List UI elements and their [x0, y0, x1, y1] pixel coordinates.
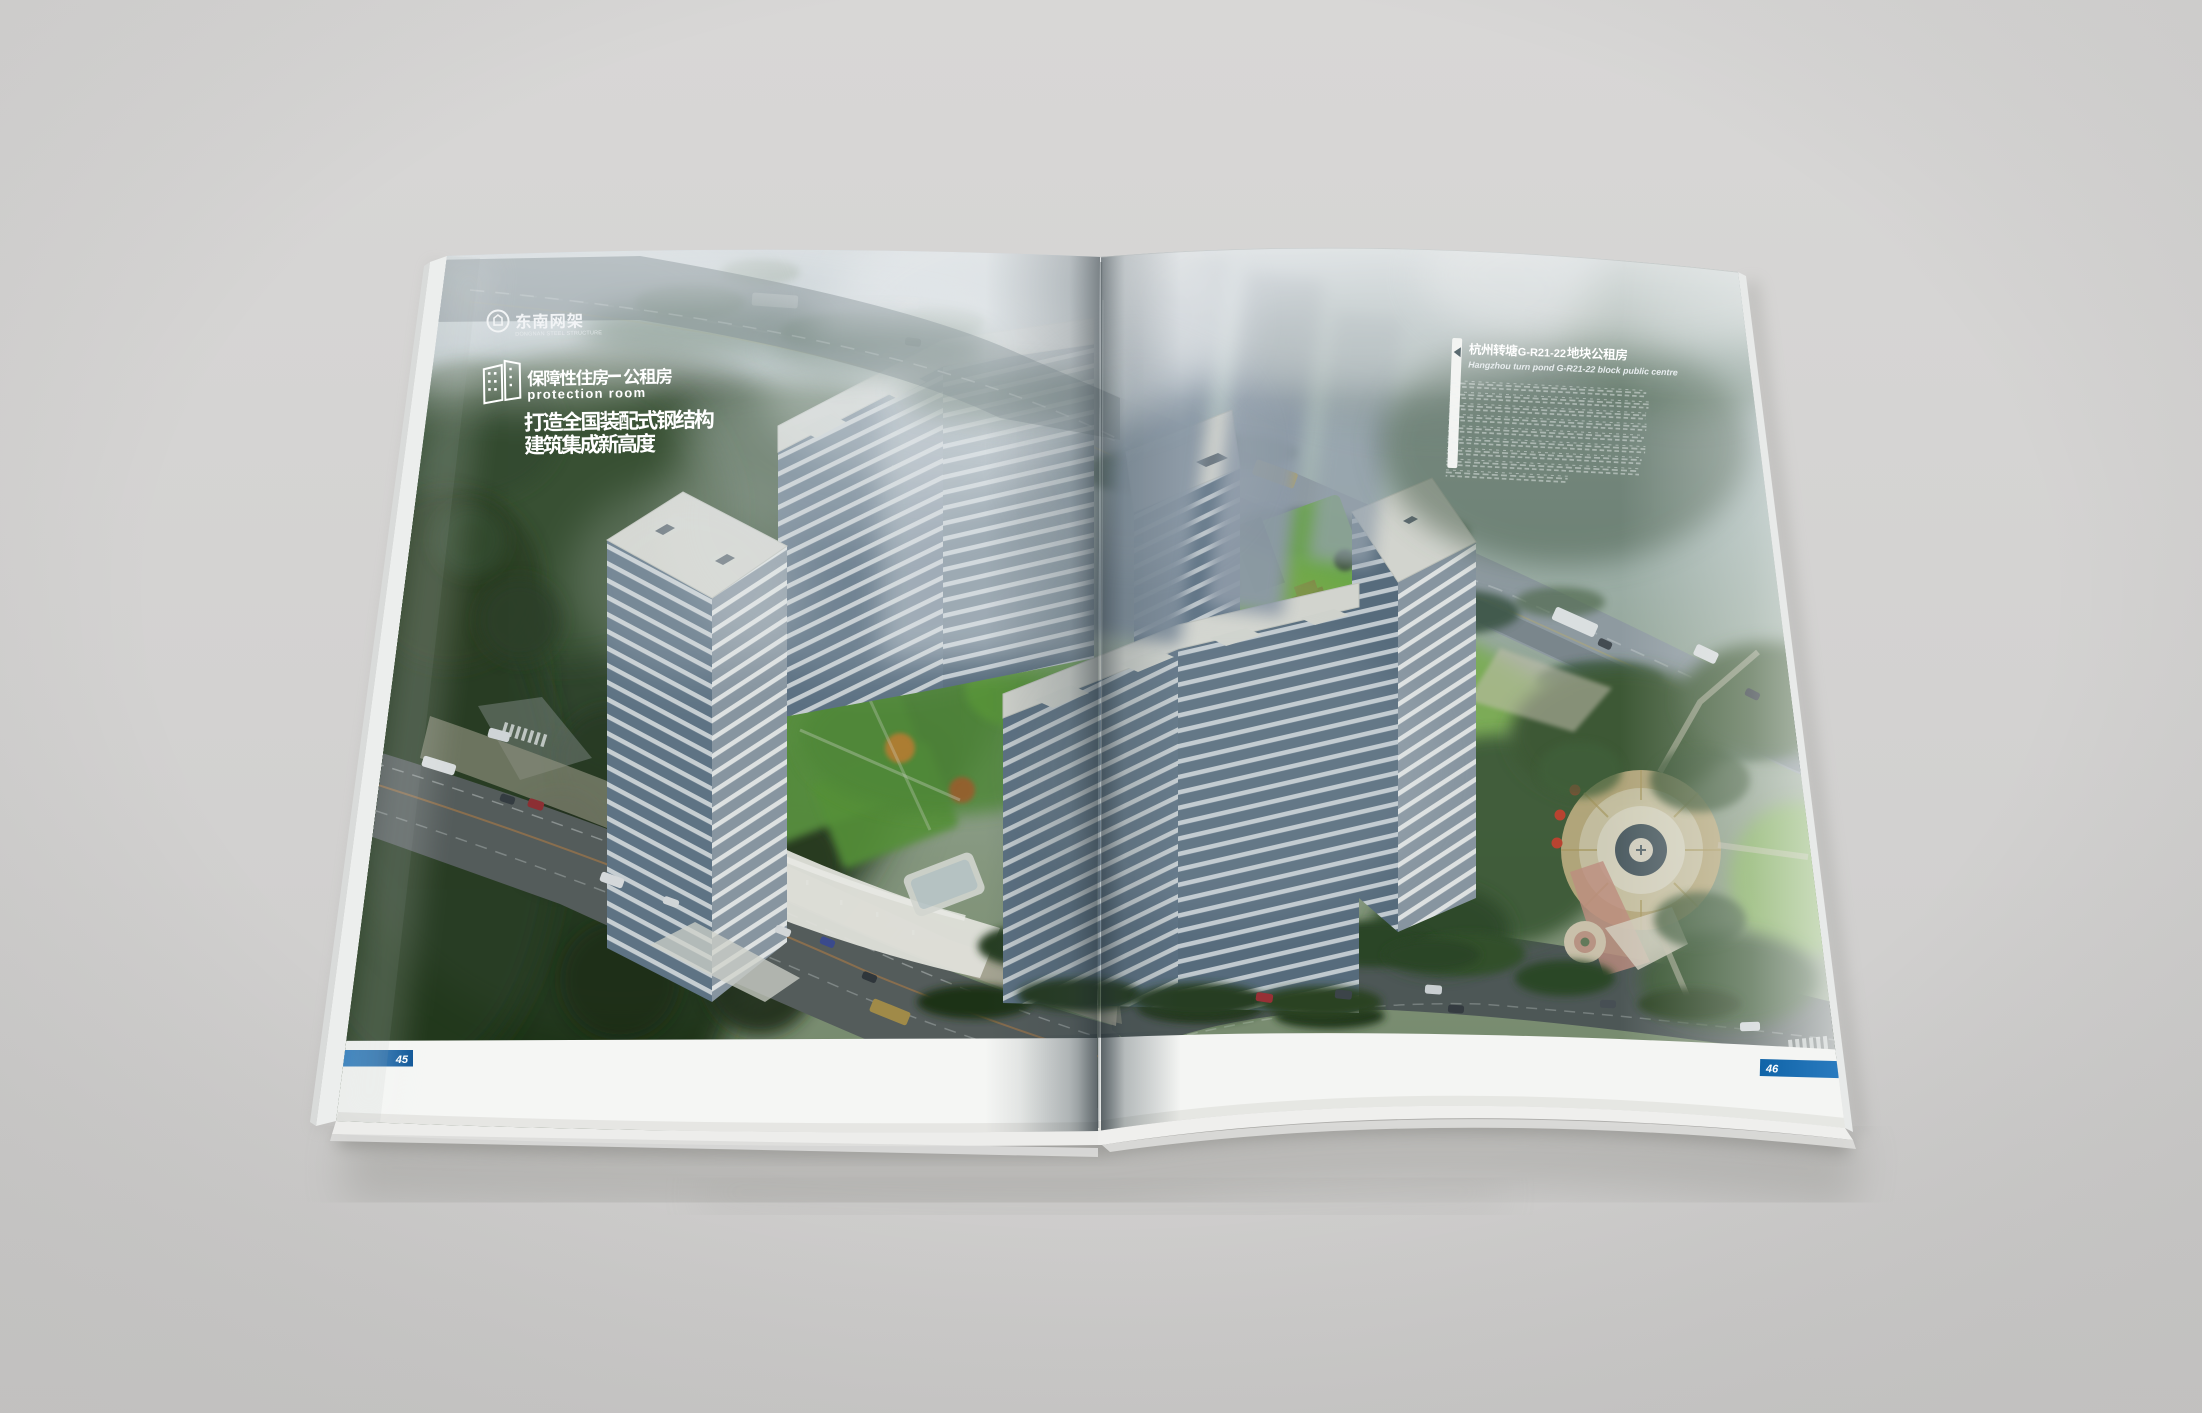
svg-text:protection room: protection room: [527, 385, 646, 402]
svg-text:G-R21-22: G-R21-22: [1518, 346, 1567, 360]
svg-text:46: 46: [1765, 1063, 1779, 1075]
